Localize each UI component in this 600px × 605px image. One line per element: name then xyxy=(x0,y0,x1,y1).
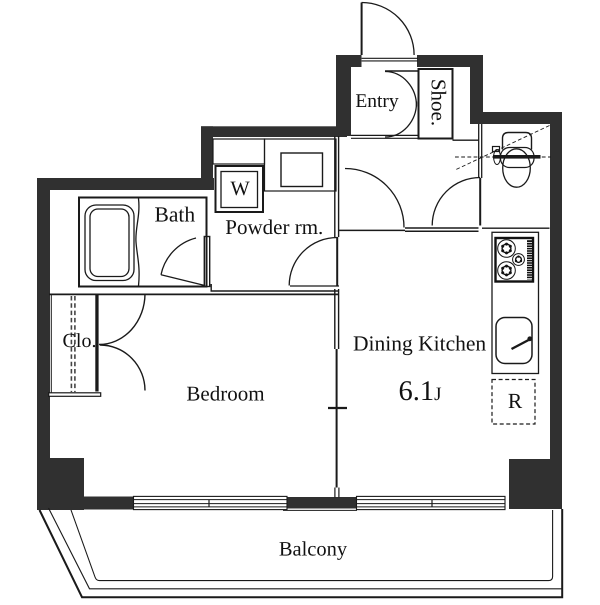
svg-text:Bath: Bath xyxy=(154,202,195,226)
svg-text:Shoe.: Shoe. xyxy=(427,79,451,126)
svg-text:Entry: Entry xyxy=(355,91,399,112)
svg-text:Clo.: Clo. xyxy=(63,330,97,352)
svg-text:Powder rm.: Powder rm. xyxy=(225,215,323,239)
svg-text:Bedroom: Bedroom xyxy=(186,381,264,405)
svg-text:R: R xyxy=(508,389,523,413)
svg-text:W: W xyxy=(230,178,250,200)
svg-text:Balcony: Balcony xyxy=(279,538,348,560)
svg-text:Dining Kitchen: Dining Kitchen xyxy=(353,331,486,355)
